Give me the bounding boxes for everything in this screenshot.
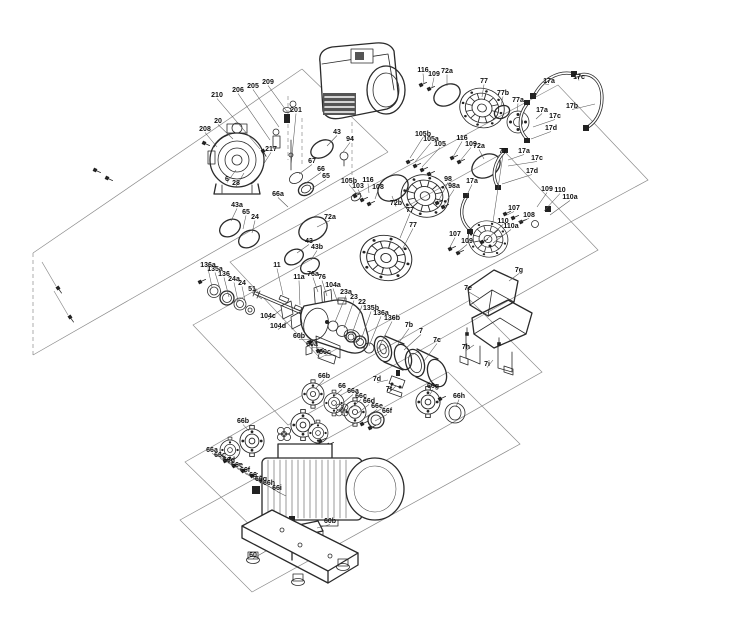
coupling-hub: [507, 111, 529, 133]
part-label: 17c: [549, 113, 561, 120]
part-label: 65: [242, 209, 250, 216]
part-label: 116: [362, 177, 373, 184]
label-leader-line: [439, 183, 448, 201]
part-label: 104d: [270, 323, 286, 330]
label-leader-line: [518, 219, 529, 223]
label-leader-line: [432, 78, 434, 88]
label-leader-line: [343, 143, 350, 153]
part-label: 7h: [462, 344, 470, 351]
part-label: 104a: [325, 282, 341, 289]
part-label: 17a: [518, 148, 530, 155]
part-label: 43a: [231, 202, 243, 209]
part-label: 28: [232, 180, 240, 187]
part-label: 7b: [405, 322, 413, 329]
part-label: 77b: [497, 90, 509, 97]
label-leader-line: [398, 329, 409, 345]
flex-disc: [355, 230, 417, 287]
screw: [105, 176, 114, 183]
part-label: 60a: [306, 341, 318, 348]
part-label: 104c: [260, 313, 276, 320]
label-leader-line: [444, 190, 454, 206]
label-leader-line: [299, 165, 312, 175]
part-label: 110a: [503, 223, 518, 230]
part-label: 66: [317, 166, 325, 173]
part-label: 77a: [512, 97, 524, 104]
part-label: 17a: [536, 107, 548, 114]
part-label: 66i: [272, 485, 282, 492]
label-leader-line: [366, 410, 377, 418]
part-label: 77: [499, 148, 507, 155]
part-label: 11a: [293, 274, 304, 281]
part-label: 7f: [386, 386, 393, 393]
label-leader-line: [423, 74, 424, 85]
part-label: 94: [346, 136, 354, 143]
part-label: 72a: [324, 214, 336, 221]
part-label: 107: [508, 205, 520, 212]
part-label: 76: [318, 274, 326, 281]
part-label: 23: [350, 294, 358, 301]
part-label: 108: [523, 212, 535, 219]
part-label: 17d: [526, 168, 538, 175]
part-label: 20: [214, 118, 222, 125]
baseplate: [242, 510, 358, 586]
label-leader-line: [453, 142, 462, 158]
part-label: 66f: [382, 408, 393, 415]
part-label: 17b: [566, 103, 578, 110]
part-label: 66a: [272, 191, 284, 198]
part-label: 66: [338, 383, 346, 390]
part-label: 7c: [433, 337, 441, 344]
label-leader-line: [368, 184, 369, 194]
part-label: 7d: [373, 376, 381, 383]
blank-cap: [445, 403, 465, 423]
part-label: 7: [419, 328, 423, 335]
part-label: 60b: [293, 333, 305, 340]
screw: [55, 285, 63, 294]
part-label: 66g: [427, 383, 439, 390]
part-label: 51: [248, 286, 256, 293]
exploded-parts-diagram: 21020620520920120208217628439443a652466a…: [0, 0, 752, 632]
label-leader-line: [299, 281, 300, 306]
part-label: 17c: [531, 155, 543, 162]
part-label: 103: [352, 183, 364, 190]
part-label: 205: [247, 83, 259, 90]
part-label: 66h: [453, 393, 465, 400]
label-leader-line: [460, 148, 471, 162]
label-leader-line: [404, 335, 421, 351]
label-leader-line: [482, 85, 484, 98]
part-label: 72b: [390, 200, 402, 207]
part-label: 72a: [441, 68, 453, 75]
part-label: 217: [265, 146, 277, 153]
part-label: 109: [428, 71, 440, 78]
screw: [67, 314, 75, 323]
label-leader-line: [450, 238, 455, 248]
part-label: 72a: [473, 143, 485, 150]
part-label: 11: [273, 262, 281, 269]
flange: [240, 425, 264, 456]
label-leader-line: [243, 216, 246, 230]
part-label: 208: [199, 126, 211, 133]
part-label: 110a: [562, 194, 577, 201]
sensor-stack: [55, 101, 296, 323]
label-leader-line: [508, 162, 537, 167]
part-label: 105: [434, 141, 446, 148]
flange: [302, 380, 324, 408]
part-label: 67: [308, 158, 316, 165]
flange: [416, 386, 440, 417]
label-leader-line: [311, 180, 326, 190]
part-label: 24: [238, 280, 246, 287]
part-label: 66b: [237, 418, 249, 425]
part-label: 66b: [318, 373, 330, 380]
part-label: 6: [225, 176, 229, 183]
part-label: 60b: [324, 518, 336, 525]
label-leader-line: [268, 86, 288, 114]
label-leader-line: [306, 173, 321, 184]
label-leader-line: [277, 269, 283, 296]
rubber-foot: [292, 574, 305, 586]
label-leader-line: [467, 185, 472, 196]
part-label: 60: [249, 552, 257, 559]
screw: [93, 168, 102, 175]
part-label: 109: [461, 238, 473, 245]
part-label: 108: [372, 184, 384, 191]
label-leader-line: [415, 143, 431, 163]
label-leader-line: [218, 125, 233, 140]
part-label: 110: [554, 187, 565, 194]
part-label: 24: [251, 214, 259, 221]
label-leader-line: [278, 198, 288, 208]
part-label: 98a: [448, 183, 460, 190]
part-label: 77: [480, 78, 488, 85]
part-label: 210: [211, 92, 223, 99]
part-label: 17c: [573, 74, 585, 81]
clover-gasket: [277, 427, 290, 440]
part-label: 17a: [543, 78, 555, 85]
part-label: 7e: [464, 285, 472, 292]
part-label: 77: [406, 207, 414, 214]
part-label: 206: [232, 87, 244, 94]
label-leader-line: [531, 132, 551, 140]
label-leader-line: [502, 175, 532, 185]
part-label: 109: [541, 186, 553, 193]
label-leader-line: [317, 221, 330, 228]
part-label: 43: [333, 129, 341, 136]
part-label: 17d: [545, 125, 557, 132]
label-leader-line: [291, 114, 296, 167]
part-label: 107: [449, 231, 461, 238]
label-leader-line: [537, 193, 547, 208]
part-label: 65: [322, 173, 330, 180]
label-leader-line: [205, 133, 217, 148]
sensor-pipes: [462, 71, 602, 234]
part-label: 201: [290, 107, 302, 114]
part-label: 60c: [319, 349, 331, 356]
part-label: 209: [262, 79, 274, 86]
label-leader-line: [375, 191, 378, 200]
part-label: 116: [417, 67, 428, 74]
label-leader-line: [507, 212, 514, 216]
part-label: 43b: [311, 244, 323, 251]
motor-top: [320, 43, 405, 119]
part-label: 17a: [466, 178, 478, 185]
diagram-page: 21020620520920120208217628439443a652466a…: [0, 0, 752, 632]
part-label: 136b: [384, 315, 400, 322]
part-label: 7i: [484, 361, 490, 368]
part-label: 77: [409, 222, 417, 229]
part-label: 98: [444, 176, 452, 183]
screw: [202, 141, 211, 148]
label-leader-line: [424, 344, 437, 362]
part-label: 7g: [515, 267, 523, 274]
label-leader-line: [536, 114, 542, 120]
